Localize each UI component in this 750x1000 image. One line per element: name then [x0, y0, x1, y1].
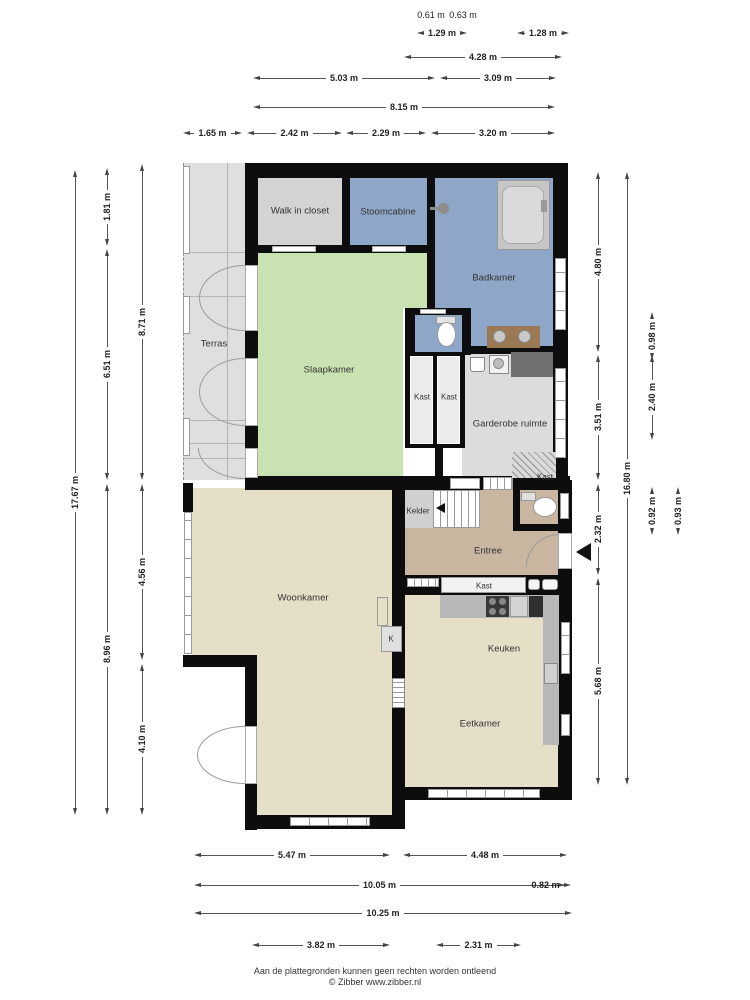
door-arc — [197, 726, 245, 755]
terras-paving-line — [183, 443, 245, 444]
door-hinge-icon — [528, 579, 540, 590]
front-door-opening — [558, 533, 572, 569]
dimension-vertical: 2.32 m — [592, 484, 604, 575]
dimension-vertical: 4.56 m — [136, 484, 148, 660]
door-opening-garderobe-entree — [450, 478, 480, 489]
room-label-keuken: Keuken — [488, 644, 520, 655]
floor-woonkamer — [192, 488, 392, 658]
floorplan-canvas: Walk in closet Stoomcabine Badkamer Terr… — [0, 0, 750, 1000]
terras-railing — [183, 296, 190, 334]
dimension-horizontal: 10.25 m — [194, 908, 572, 918]
floor-keuken-eetkamer — [405, 592, 559, 790]
dimension-vertical: 0.92 m — [646, 487, 658, 524]
dimension-label: 0.61 m — [417, 10, 445, 20]
shower-arm-icon — [430, 207, 439, 210]
room-label-kast-k: K — [388, 635, 393, 644]
door-arc — [197, 755, 245, 784]
dimension-horizontal: 3.20 m — [431, 128, 555, 138]
wall — [183, 483, 193, 512]
room-label-stoomcabine: Stoomcabine — [360, 207, 415, 218]
room-label-kast: Kast — [441, 393, 457, 402]
washing-machine-drum-icon — [493, 358, 504, 369]
dimension-vertical: 16.80 m — [621, 172, 633, 785]
stove-burner-icon — [489, 598, 496, 605]
wall — [245, 476, 570, 490]
dimension-horizontal: 3.82 m — [252, 940, 390, 950]
dimension-horizontal: 2.29 m — [346, 128, 426, 138]
oven-icon — [529, 596, 544, 617]
sink-icon — [518, 330, 531, 343]
window — [184, 512, 192, 654]
wall — [513, 488, 520, 526]
stove-burner-icon — [499, 608, 506, 615]
wall — [245, 163, 568, 178]
dimension-vertical: 8.71 m — [136, 164, 148, 480]
dimension-horizontal: 4.28 m — [404, 52, 562, 62]
dimension-vertical: 0.98 m — [646, 312, 658, 355]
dimension-vertical: 3.51 m — [592, 355, 604, 480]
window — [428, 789, 540, 798]
dimension-horizontal: 10.05 m — [194, 880, 565, 890]
dimension-horizontal: 8.15 m — [253, 102, 555, 112]
door-hinge-icon — [542, 579, 558, 590]
wall — [513, 524, 568, 531]
dimension-horizontal: 1.28 m — [517, 28, 569, 38]
footer-disclaimer: Aan de plattegronden kunnen geen rechten… — [0, 966, 750, 976]
wall — [435, 443, 443, 480]
room-label-kast: Kast — [414, 393, 430, 402]
window — [555, 368, 566, 458]
dimension-vertical: 4.80 m — [592, 172, 604, 352]
dimension-horizontal: 2.42 m — [247, 128, 342, 138]
floor-woonkamer — [257, 655, 392, 817]
footer-copyright: © Zibber www.zibber.nl — [0, 977, 750, 987]
stove-burner-icon — [489, 608, 496, 615]
terras-door-opening — [245, 448, 258, 478]
terras-paving-line — [183, 252, 245, 253]
dimension-vertical: 0.93 m — [672, 487, 684, 524]
dimension-horizontal: 3.09 m — [440, 73, 556, 83]
bathtub-faucet-icon — [541, 200, 547, 212]
laundry-basket-icon — [470, 357, 485, 372]
dimension-vertical: 6.51 m — [101, 249, 113, 480]
dimension-vertical: 17.67 m — [69, 170, 81, 815]
room-label-entree: Entree — [474, 546, 502, 557]
floor-slaapkamer — [403, 252, 427, 308]
terras-railing — [183, 418, 190, 456]
room-label-badkamer: Badkamer — [472, 273, 515, 284]
room-label-slaapkamer: Slaapkamer — [304, 365, 355, 376]
window — [555, 258, 566, 330]
terras-railing — [183, 166, 190, 254]
room-label-kast-entree: Kast — [476, 582, 492, 591]
door-opening-stoomcabine — [372, 246, 406, 252]
radiator — [392, 678, 405, 708]
hall-threshold — [407, 578, 439, 587]
window — [561, 714, 570, 736]
cistern-icon — [521, 492, 536, 501]
dimension-horizontal: 5.47 m — [194, 850, 390, 860]
terras-door-opening — [245, 358, 258, 426]
room-label-walk-in-closet: Walk in closet — [271, 206, 329, 217]
dimension-horizontal: 2.31 m — [436, 940, 521, 950]
toilet-icon — [437, 322, 456, 347]
sink-icon — [493, 330, 506, 343]
dimension-vertical: 8.96 m — [101, 484, 113, 815]
dimension-horizontal: 0.82 m — [527, 880, 571, 890]
dimension-horizontal: 1.65 m — [183, 128, 242, 138]
room-label-garderobe: Garderobe ruimte — [473, 419, 547, 430]
fireplace-outline — [377, 597, 388, 626]
fridge-icon — [544, 663, 558, 684]
stairs-to-upper-floor — [483, 477, 513, 490]
terras-door-opening — [245, 265, 258, 331]
entrance-arrow-icon — [576, 543, 591, 561]
cabinet-dark — [511, 352, 553, 377]
garden-door-opening — [245, 726, 257, 784]
room-label-woonkamer: Woonkamer — [277, 593, 328, 604]
room-label-kast-hoek: Kast — [537, 473, 553, 482]
dimension-label: 0.63 m — [449, 10, 477, 20]
room-label-eetkamer: Eetkamer — [460, 719, 501, 730]
shower-head-icon — [438, 203, 449, 214]
stairs-direction-arrow-icon — [436, 503, 445, 513]
dimension-horizontal: 1.29 m — [417, 28, 467, 38]
room-label-terras: Terras — [201, 339, 227, 350]
window — [290, 817, 370, 826]
dimension-horizontal: 5.03 m — [253, 73, 435, 83]
door-opening-walk-in-closet — [272, 246, 316, 252]
wall — [427, 178, 435, 310]
dimension-vertical: 2.40 m — [646, 355, 658, 440]
toilet-icon — [533, 497, 557, 517]
dimension-vertical: 1.81 m — [101, 168, 113, 246]
dimension-vertical: 4.10 m — [136, 664, 148, 815]
wall — [342, 178, 350, 245]
room-label-kelder: Kelder — [406, 507, 429, 516]
window — [560, 493, 569, 519]
kitchen-sink-icon — [510, 596, 528, 617]
dimension-horizontal: 4.48 m — [403, 850, 567, 860]
stove-burner-icon — [499, 598, 506, 605]
dimension-vertical: 5.68 m — [592, 578, 604, 785]
door-opening-toilet — [420, 309, 446, 314]
window — [561, 622, 570, 674]
bathtub-basin — [502, 186, 544, 244]
wall — [405, 308, 415, 355]
